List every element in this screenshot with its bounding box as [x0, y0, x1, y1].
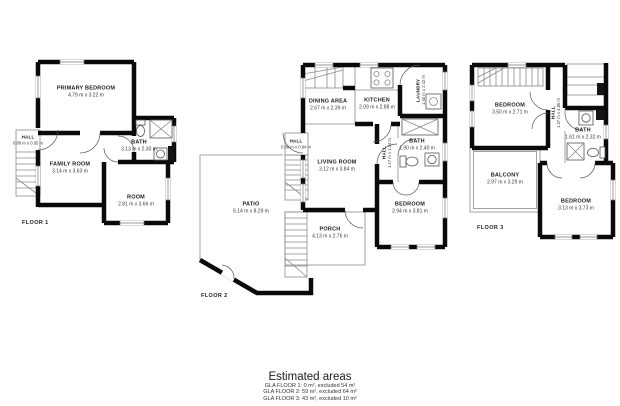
- floor-2-label: FLOOR 2: [201, 293, 228, 299]
- room-label-kitchen: KITCHEN 2.09 m x 2.88 m: [359, 97, 395, 110]
- room-label-bedroom-f2: BEDROOM 2.94 m x 3.81 m: [392, 201, 428, 214]
- room-label-patio: PATIO 5.14 m x 8.29 m: [233, 201, 269, 214]
- shower-icon: [402, 119, 438, 135]
- floor-plan-canvas: PRIMARY BEDROOM 4.79 m x 3.22 m HALL 0.8…: [0, 0, 620, 406]
- floor-1-drawing: [8, 28, 193, 233]
- sink-icon: [425, 153, 439, 166]
- room-label-balcony: BALCONY 2.97 m x 3.29 m: [487, 172, 523, 185]
- legend-line-floor-3: GLA FLOOR 3: 43 m², excluded 10 m²: [263, 396, 357, 402]
- sink-icon: [579, 111, 593, 125]
- legend-line-floor-2: GLA FLOOR 2: 59 m², excluded 64 m²: [263, 389, 357, 395]
- room-label-hall-f1: HALL 0.88 m x 0.95 m: [13, 135, 43, 146]
- room-label-bath-f3: BATH 1.61 m x 2.32 m: [565, 127, 601, 140]
- room-label-family-room: FAMILY ROOM 3.14 m x 3.63 m: [50, 161, 90, 174]
- floor-2-plan: DINING AREA 2.67 m x 2.39 m KITCHEN 2.09…: [195, 48, 453, 310]
- stove-icon: [371, 68, 393, 88]
- staircase-icon: [478, 68, 543, 86]
- floor-3-label: FLOOR 3: [477, 225, 504, 231]
- floor-3-plan: BEDROOM 3.50 m x 2.71 m HALL 1.37 m x 4.…: [463, 55, 618, 300]
- room-label-primary-bedroom: PRIMARY BEDROOM 4.79 m x 3.22 m: [57, 85, 115, 98]
- room-label-dining-area: DINING AREA 2.67 m x 2.39 m: [309, 98, 347, 111]
- room-label-hall-v-f2: HALL 1.17 m x 1.04 m: [382, 138, 393, 168]
- toilet-icon: [136, 120, 145, 137]
- winder-stairs-icon: [303, 65, 343, 88]
- room-label-porch: PORCH 4.13 m x 2.76 m: [312, 226, 348, 239]
- floor-2-drawing: [195, 48, 453, 310]
- floor-1-plan: PRIMARY BEDROOM 4.79 m x 3.22 m HALL 0.8…: [8, 28, 193, 233]
- estimated-areas-legend: Estimated areas GLA FLOOR 1: 0 m², exclu…: [263, 371, 357, 402]
- room-label-bedroom-f3-top: BEDROOM 3.50 m x 2.71 m: [492, 102, 528, 115]
- room-label-bedroom-f3-bottom: BEDROOM 3.13 m x 3.73 m: [558, 198, 594, 211]
- room-label-laundry: LAUNDRY 1.40 m x 2.42 m: [416, 75, 427, 105]
- shower-icon: [150, 120, 172, 138]
- floor-1-label: FLOOR 1: [22, 220, 49, 226]
- toilet-icon: [588, 147, 606, 158]
- room-label-hall-f2: HALL 0.88 m x 0.94 m: [281, 139, 311, 150]
- cabinet-icon: [168, 146, 174, 160]
- legend-title: Estimated areas: [263, 371, 357, 383]
- toilet-icon: [400, 156, 418, 167]
- cabinet-icon: [596, 110, 605, 120]
- room-label-room-f1: ROOM 2.81 m x 3.66 m: [118, 194, 154, 207]
- room-label-hall-f3: HALL 1.37 m x 4.86 m: [551, 98, 562, 128]
- utility-closet: [567, 64, 606, 95]
- room-label-bath-f2: BATH 1.90 m x 2.40 m: [399, 138, 435, 151]
- shower-icon: [567, 143, 584, 160]
- washer-icon: [426, 94, 441, 109]
- room-label-living-room: LIVING ROOM 3.12 m x 3.84 m: [317, 159, 356, 172]
- room-label-bath-f1: BATH 3.13 m x 2.30 m: [121, 139, 157, 152]
